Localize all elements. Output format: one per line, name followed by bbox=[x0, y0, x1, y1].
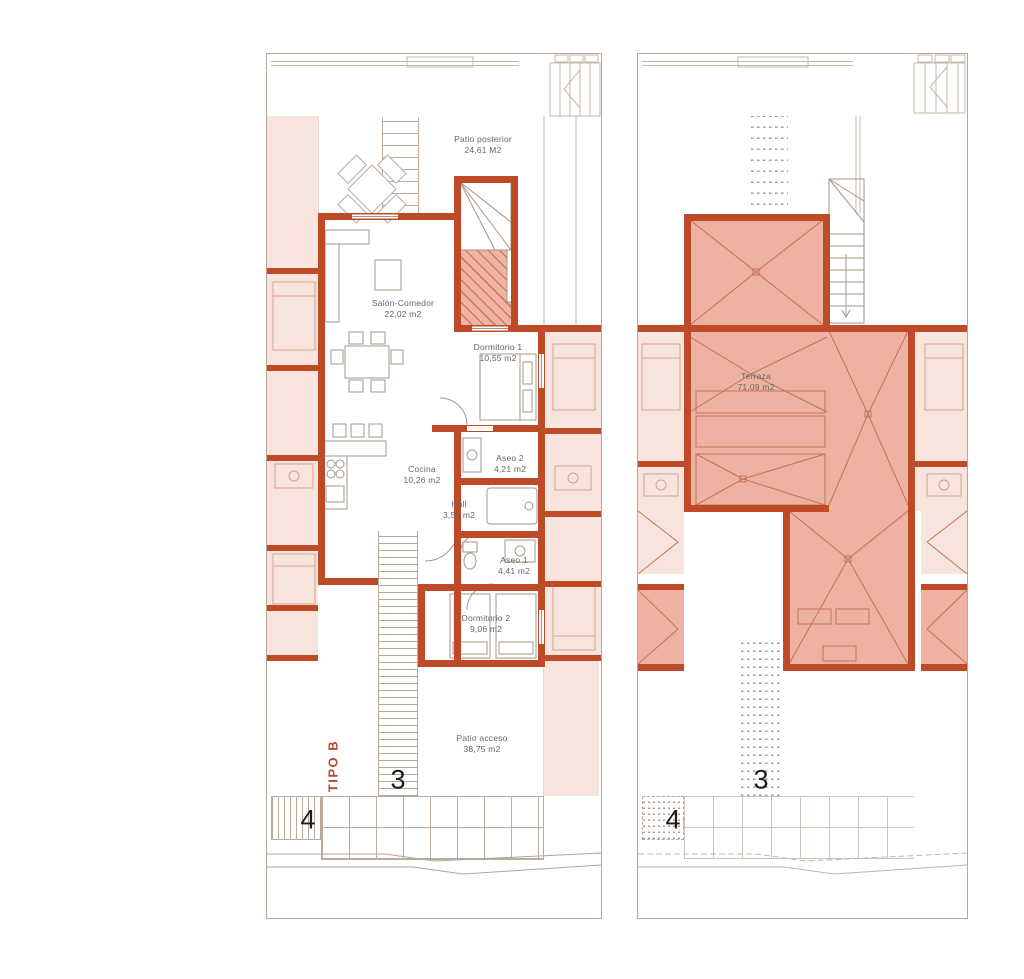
pergola-table-icon bbox=[323, 140, 422, 239]
room-label-hall: Hall 3,53 m2 bbox=[399, 499, 519, 521]
street-boundary-lines bbox=[638, 853, 967, 874]
roof-edge-lines bbox=[642, 55, 965, 214]
room-label-patio-acceso: Patio acceso 38,75 m2 bbox=[422, 733, 542, 755]
ground-floor-plan: Patio posterior 24,61 M2 Salón-Comedor 2… bbox=[266, 53, 602, 919]
stair-drawing bbox=[829, 179, 864, 323]
roof-plan-drawing bbox=[638, 54, 967, 918]
type-label: TIPO B bbox=[326, 740, 341, 792]
roof-plan: Terraza 71,09 m2 3 4 bbox=[637, 53, 968, 919]
room-label-terraza: Terraza 71,09 m2 bbox=[696, 371, 816, 393]
unit-number-3: 3 bbox=[390, 765, 405, 796]
room-label-dormitorio-1: Dormitorio 1 10,55 m2 bbox=[438, 342, 558, 364]
unit-number-3: 3 bbox=[753, 765, 768, 796]
unit-number-4: 4 bbox=[665, 805, 680, 836]
street-boundary-lines bbox=[267, 853, 601, 874]
room-label-dormitorio-2: Dormitorio 2 9,06 m2 bbox=[426, 613, 546, 635]
stair-winder-lines bbox=[460, 182, 511, 250]
room-label-aseo-2: Aseo 2 4,21 m2 bbox=[450, 453, 570, 475]
unit-number-4: 4 bbox=[300, 805, 315, 836]
floorplan-sheet: Patio posterior 24,61 M2 Salón-Comedor 2… bbox=[0, 0, 1024, 979]
room-label-salon-comedor: Salón-Comedor 22,02 m2 bbox=[343, 298, 463, 320]
unit-furniture bbox=[324, 230, 537, 658]
room-label-aseo-1: Aseo 1 4,41 m2 bbox=[454, 555, 574, 577]
room-label-patio-posterior: Patio posterior 24,61 M2 bbox=[423, 134, 543, 156]
